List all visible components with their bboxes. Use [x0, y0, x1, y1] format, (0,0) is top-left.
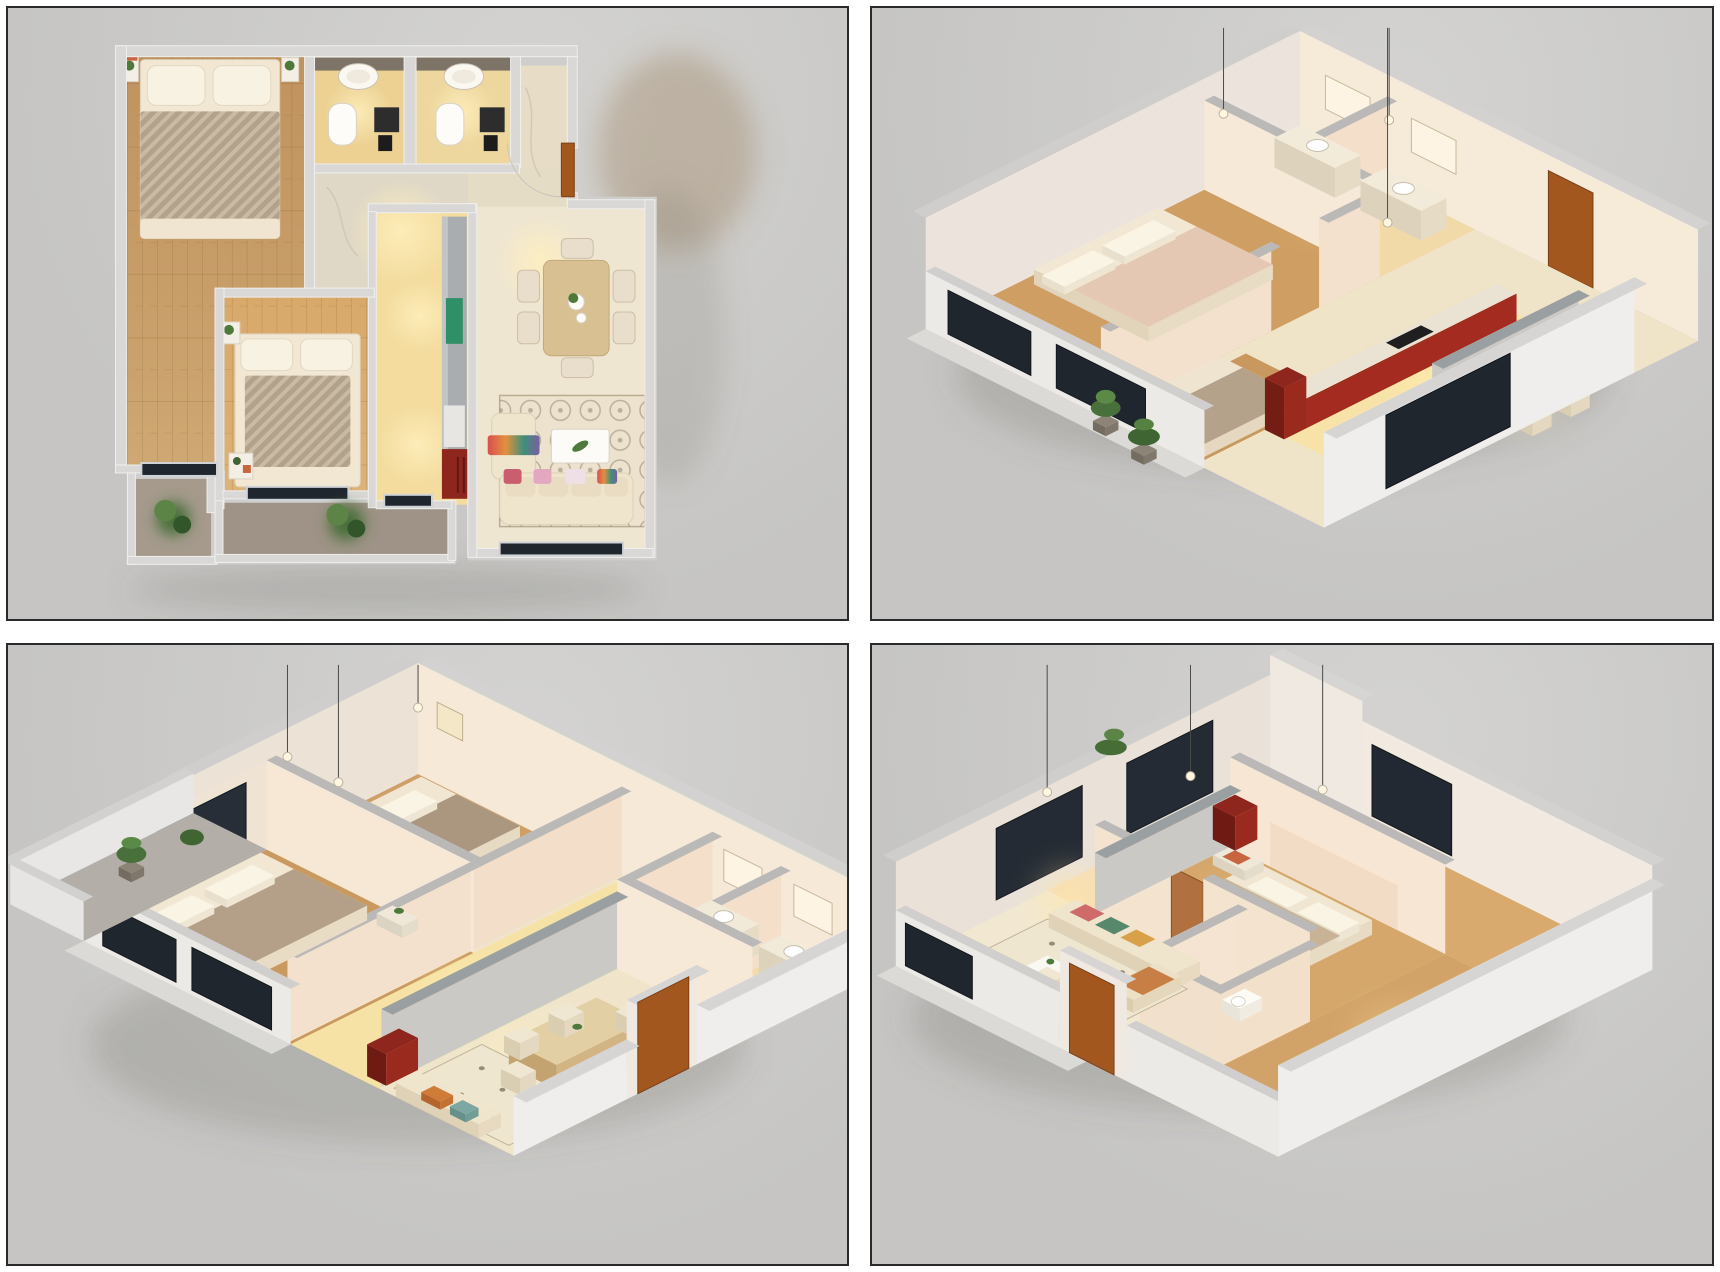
living-room — [488, 395, 645, 526]
sofa-pillow-1 — [504, 469, 522, 484]
sofa-throw-blanket — [488, 435, 540, 455]
master-bed — [140, 60, 279, 239]
render-collage — [0, 0, 1720, 1272]
sofa-pillow-2 — [533, 469, 551, 484]
panel-top-right — [870, 6, 1714, 621]
panel-top-left — [6, 6, 849, 621]
panel-bottom-left — [6, 643, 849, 1266]
sofa-pillow-3 — [565, 469, 585, 484]
panel-bottom-right — [870, 643, 1714, 1266]
floor-plan-isometric-left-render — [8, 645, 847, 1264]
floor-plan-isometric-front-render — [872, 8, 1712, 619]
floor-plan-isometric-right-render — [872, 645, 1712, 1264]
bedroom-2-bed — [235, 334, 360, 487]
kitchen-counter — [442, 217, 470, 499]
sofa-pillow-4 — [597, 469, 617, 484]
floor-plan-top-down-render — [8, 8, 847, 619]
kitchen-red-cabinet — [442, 449, 470, 499]
